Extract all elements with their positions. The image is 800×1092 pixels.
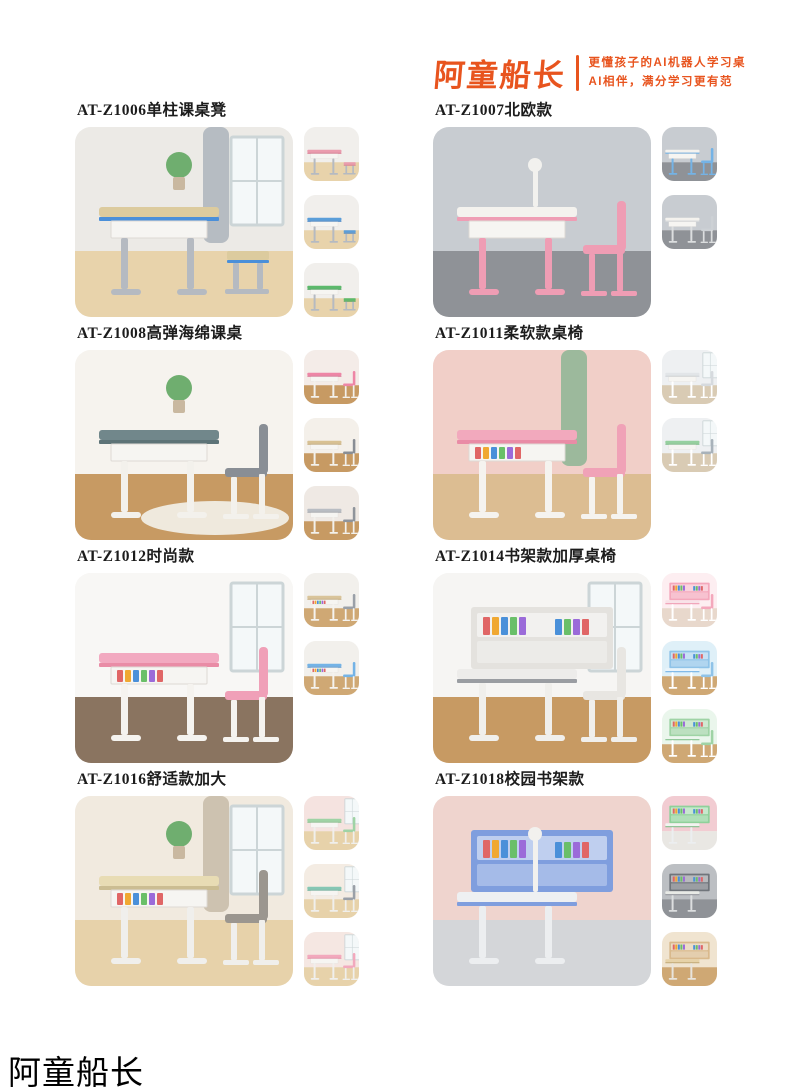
brand-header: 阿童船长 更懂孩子的AI机器人学习桌 AI相伴，满分学习更有范 [434,50,747,95]
variant-thumbnail[interactable] [662,350,717,404]
product-thumbnails [662,573,717,763]
product-title: AT-Z1018校园书架款 [435,767,719,789]
variant-thumbnail[interactable] [662,864,717,918]
logo-divider [576,55,579,91]
product-main-image[interactable] [75,573,293,763]
tagline-line-1: 更懂孩子的AI机器人学习桌 [589,54,747,72]
product-card-at-z1012: AT-Z1012时尚款 [75,544,361,763]
variant-thumbnail[interactable] [662,195,717,249]
product-thumbnails [662,796,717,986]
product-card-at-z1011: AT-Z1011柔软款桌椅 [433,321,719,540]
product-main-image[interactable] [75,350,293,540]
product-title: AT-Z1012时尚款 [77,544,361,566]
product-main-image[interactable] [433,573,651,763]
product-thumbnails [304,350,359,540]
variant-thumbnail[interactable] [662,127,717,181]
product-main-image[interactable] [433,796,651,986]
variant-thumbnail[interactable] [662,709,717,763]
variant-thumbnail[interactable] [662,641,717,695]
variant-thumbnail[interactable] [304,350,359,404]
product-main-image[interactable] [433,127,651,317]
product-title: AT-Z1007北欧款 [435,98,719,120]
product-card-at-z1016: AT-Z1016舒适款加大 [75,767,361,986]
variant-thumbnail[interactable] [304,486,359,540]
product-title: AT-Z1008高弹海绵课桌 [77,321,361,343]
product-card-at-z1014: AT-Z1014书架款加厚桌椅 [433,544,719,763]
product-card-at-z1018: AT-Z1018校园书架款 [433,767,719,986]
variant-thumbnail[interactable] [304,864,359,918]
variant-thumbnail[interactable] [662,932,717,986]
product-thumbnails [662,127,717,317]
footer-brand-text: 阿童船长 [8,1046,144,1092]
product-main-image[interactable] [75,796,293,986]
catalog-page: 阿童船长 更懂孩子的AI机器人学习桌 AI相伴，满分学习更有范 AT-Z1006… [0,0,800,1092]
brand-tagline: 更懂孩子的AI机器人学习桌 AI相伴，满分学习更有范 [589,54,747,91]
product-thumbnails [304,573,359,763]
brand-logo: 阿童船长 [432,50,568,95]
variant-thumbnail[interactable] [304,127,359,181]
variant-thumbnail[interactable] [304,418,359,472]
variant-thumbnail[interactable] [304,263,359,317]
product-card-at-z1006: AT-Z1006单柱课桌凳 [75,98,361,317]
product-title: AT-Z1014书架款加厚桌椅 [435,544,719,566]
product-main-image[interactable] [433,350,651,540]
variant-thumbnail[interactable] [662,796,717,850]
product-main-image[interactable] [75,127,293,317]
product-card-at-z1007: AT-Z1007北欧款 [433,98,719,317]
product-thumbnails [304,127,359,317]
product-card-at-z1008: AT-Z1008高弹海绵课桌 [75,321,361,540]
product-title: AT-Z1016舒适款加大 [77,767,361,789]
tagline-line-2: AI相伴，满分学习更有范 [589,73,747,91]
product-title: AT-Z1006单柱课桌凳 [77,98,361,120]
product-thumbnails [304,796,359,986]
variant-thumbnail[interactable] [304,932,359,986]
variant-thumbnail[interactable] [304,195,359,249]
product-title: AT-Z1011柔软款桌椅 [435,321,719,343]
product-thumbnails [662,350,717,540]
variant-thumbnail[interactable] [304,796,359,850]
variant-thumbnail[interactable] [304,641,359,695]
variant-thumbnail[interactable] [304,573,359,627]
variant-thumbnail[interactable] [662,418,717,472]
variant-thumbnail[interactable] [662,573,717,627]
